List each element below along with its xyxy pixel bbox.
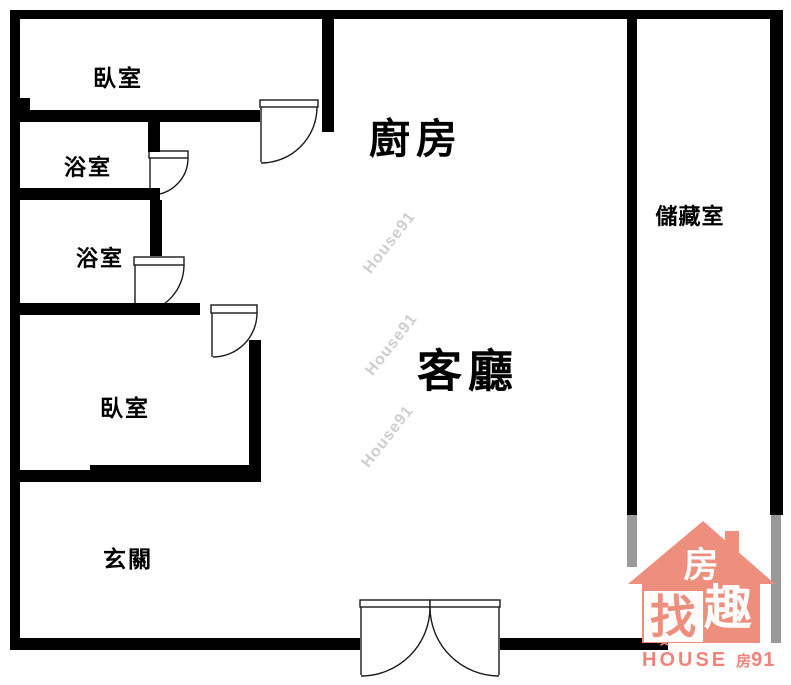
wall-between-bathrooms [10,188,160,200]
wall-right-exterior [770,10,783,515]
entrance-double-door [360,600,500,676]
door-arc-right [430,607,499,676]
brand-logo: 房 找 趣 HOUSE ˆ 房 91 [620,500,791,685]
room-label-bathroom-upper: 浴室 [64,150,112,182]
wall-bathroom-lower-right [150,200,162,256]
wall-top-exterior [10,10,783,19]
wall-bedroom-bottom-bottom [90,465,261,482]
wall-notch [18,98,30,110]
wall-bedroom-top-bottom [18,110,260,122]
door-leaf-closed [134,257,184,265]
door-arc [261,107,317,163]
wall-entry-top [18,470,90,482]
roof-caret-icon: ˆ [660,641,668,659]
floor-plan: 臥室 浴室 浴室 臥室 廚房 客廳 儲藏室 玄關 House91 House91… [0,0,791,685]
room-label-bathroom-lower: 浴室 [76,241,124,273]
brand-word-text: HOUSE [642,649,728,671]
door-arc-left [361,607,430,676]
brand-wordmark: HOUSE ˆ 房 91 [642,648,790,670]
room-label-bedroom-top: 臥室 [93,59,143,93]
logo-roof-char: 房 [683,546,718,585]
wall-storage-left [627,15,637,515]
wall-bathroom-upper-right [148,122,160,152]
brand-word: HOUSE ˆ [642,650,728,670]
room-label-entrance: 玄關 [103,540,153,574]
brand-suffix-num: 91 [751,650,775,670]
room-label-living-room: 客廳 [417,335,519,400]
room-label-kitchen: 廚房 [369,105,463,165]
wall-kitchen-stub [322,13,334,132]
wall-bottom-left [10,638,360,650]
room-label-storage: 儲藏室 [655,199,724,231]
door-bedroom-top [260,100,318,163]
door-leaf-closed-right [430,600,500,607]
room-label-bedroom-bottom: 臥室 [100,389,150,423]
wall-bedroom-bottom-right [249,340,261,482]
wall-bathroom-lower-bottom [10,303,200,315]
door-leaf-closed [211,305,257,313]
door-leaf-closed-left [360,600,430,607]
door-leaf-closed [260,100,318,107]
logo-box-char: 找 [650,591,696,643]
door-leaf-closed [149,151,188,158]
logo-body-char: 趣 [704,582,752,635]
brand-suffix-cjk: 房 [736,654,751,671]
